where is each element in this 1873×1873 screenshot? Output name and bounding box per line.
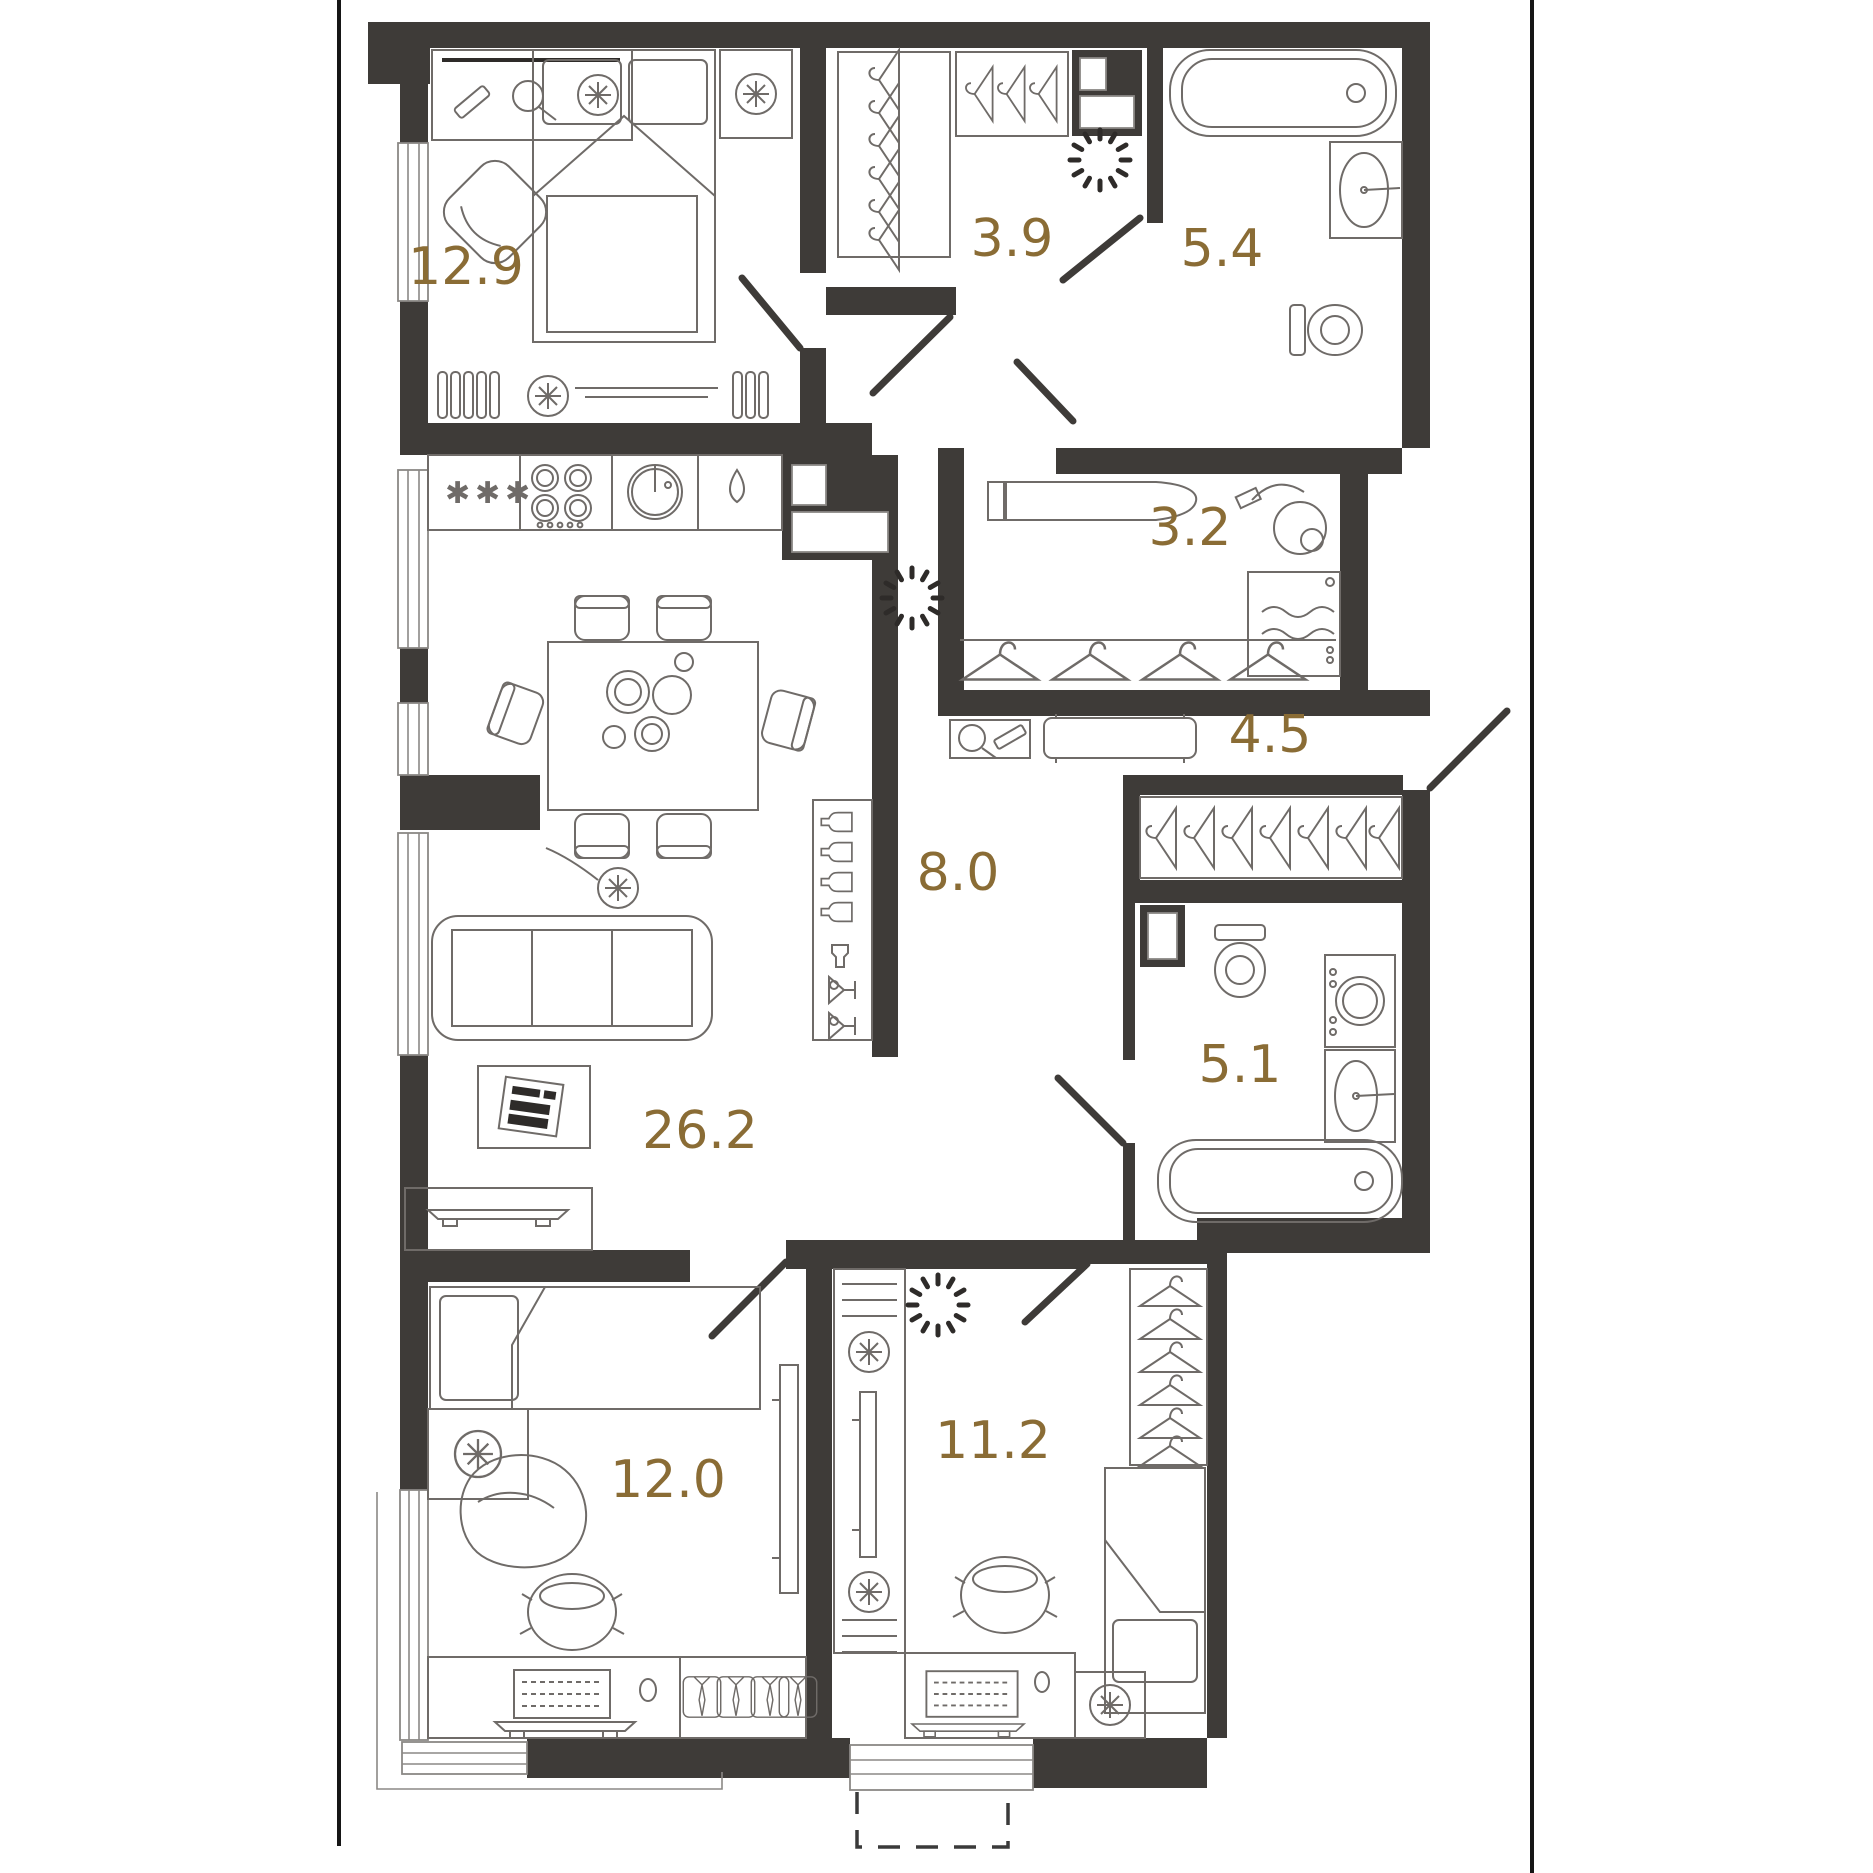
balcony-dashed-outline bbox=[857, 1792, 1008, 1847]
desk-icon bbox=[428, 1657, 680, 1738]
single-bed-icon bbox=[430, 1287, 760, 1409]
single-bed-icon bbox=[1105, 1468, 1205, 1713]
sofa-icon bbox=[432, 916, 712, 1040]
hallway-furniture bbox=[950, 714, 1402, 878]
mirror-shelf-icon bbox=[950, 720, 1030, 758]
window-bedroom-second bbox=[850, 1745, 1033, 1790]
shelf-hangers-icon bbox=[956, 52, 1068, 136]
washbasin-icon bbox=[1325, 1050, 1395, 1142]
window-living-3 bbox=[398, 833, 428, 1055]
room-area-label-corridor: 8.0 bbox=[917, 843, 1000, 903]
room-area-label-utility: 3.2 bbox=[1149, 498, 1232, 558]
toilet-icon bbox=[1290, 305, 1362, 355]
bedroom-main-furniture bbox=[432, 50, 792, 418]
nightstand-lamp-icon bbox=[720, 50, 792, 138]
kitchen-counter-icon: ✱✱✱ bbox=[428, 455, 782, 530]
stove-icon bbox=[532, 465, 591, 527]
desk-chair-icon bbox=[520, 1574, 624, 1650]
radiator-icon bbox=[438, 372, 768, 418]
double-bed-icon bbox=[533, 50, 715, 342]
bathtub-icon bbox=[1170, 50, 1396, 136]
lamp-icon bbox=[578, 75, 618, 115]
washbasin-icon bbox=[1330, 142, 1402, 238]
window-living-2 bbox=[398, 703, 428, 775]
fan-unit-icon bbox=[428, 1409, 528, 1499]
tv-stand-icon bbox=[405, 1188, 592, 1250]
room-area-label-bathroom-second: 5.1 bbox=[1199, 1035, 1282, 1095]
wall-layer bbox=[368, 22, 1430, 1788]
shelving-icon bbox=[834, 1269, 905, 1653]
bathroom-main-furniture bbox=[1170, 50, 1402, 355]
beanbag-icon bbox=[461, 1455, 587, 1567]
room-area-label-hallway: 4.5 bbox=[1229, 705, 1312, 765]
washing-machine-icon bbox=[1248, 572, 1340, 676]
svg-text:✱: ✱ bbox=[445, 476, 470, 511]
coffee-table-icon bbox=[478, 1066, 590, 1148]
room-area-label-bedroom-main: 12.9 bbox=[408, 237, 524, 297]
hanger-rail-icon bbox=[1130, 1269, 1207, 1466]
toilet-icon bbox=[1215, 925, 1265, 997]
washing-machine-icon bbox=[1325, 955, 1395, 1047]
desk-icon bbox=[905, 1653, 1075, 1738]
duct-kitchen-icon bbox=[782, 455, 898, 560]
fridge-icon: ✱✱✱ bbox=[445, 476, 530, 511]
kids-room-furniture bbox=[428, 1287, 817, 1738]
bench-icon bbox=[1044, 714, 1196, 763]
desk-chair-icon bbox=[953, 1557, 1057, 1633]
wardrobe-shirts-icon bbox=[680, 1657, 817, 1738]
closet-hangers-icon bbox=[1140, 797, 1402, 878]
floor-plan: ✱✱✱ bbox=[0, 0, 1873, 1873]
room-area-label-living-kitchen: 26.2 bbox=[642, 1101, 758, 1161]
room-area-label-bedroom-second: 11.2 bbox=[935, 1411, 1051, 1471]
extractor-fan-icon bbox=[1070, 130, 1130, 190]
tv-panel-icon bbox=[772, 1365, 798, 1593]
room-area-label-kids-room: 12.0 bbox=[610, 1450, 726, 1510]
extractor-fan-icon bbox=[908, 1275, 968, 1335]
vacuum-cleaner-icon bbox=[1236, 485, 1326, 554]
sink-icon bbox=[628, 465, 682, 519]
hanger-rail-icon bbox=[869, 50, 899, 270]
svg-text:✱: ✱ bbox=[475, 476, 500, 511]
svg-text:✱: ✱ bbox=[505, 476, 530, 511]
bathtub-icon bbox=[1158, 1140, 1402, 1222]
window-living-1 bbox=[398, 470, 428, 648]
room-area-label-wardrobe: 3.9 bbox=[971, 209, 1054, 269]
bar-counter-icon bbox=[813, 800, 872, 1040]
room-area-label-bathroom-main: 5.4 bbox=[1181, 219, 1264, 279]
duct-wardrobe-icon bbox=[1072, 50, 1142, 136]
duct-bathroom2-icon bbox=[1140, 905, 1185, 967]
drain-icon bbox=[730, 470, 744, 502]
bedroom-second-furniture bbox=[834, 1269, 1207, 1738]
hanger-rail-icon bbox=[960, 640, 1336, 680]
